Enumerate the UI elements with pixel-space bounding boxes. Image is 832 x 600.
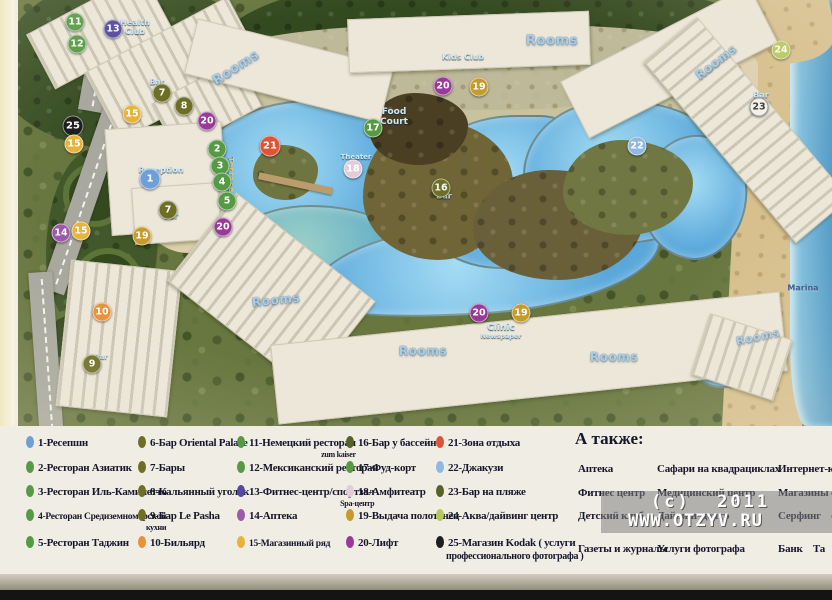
legend-label: 20-Лифт — [358, 537, 398, 549]
legend-item: 11-Немецкий ресторанzum kaiser — [237, 433, 356, 459]
map-marker-15: 15 — [123, 105, 142, 124]
map-marker-7: 7 — [159, 201, 178, 220]
map-marker-20: 20 — [214, 218, 233, 237]
legend-label: 6-Бар Oriental Palace — [150, 437, 248, 449]
legend-item: 7-Бары — [138, 458, 185, 476]
legend-item: 15-Магазинный ряд — [237, 533, 330, 551]
bottom-black-bar — [0, 590, 832, 600]
legend-dot — [237, 461, 245, 473]
map-marker-7: 7 — [153, 84, 172, 103]
legend-item: 1-Ресепшн — [26, 433, 88, 451]
legend-dot — [436, 436, 444, 448]
map-label-rooms: Rooms — [399, 344, 447, 358]
map-marker-4: 4 — [213, 173, 232, 192]
map-marker-10: 10 — [93, 303, 112, 322]
legend-dot — [346, 509, 354, 521]
legend-label: 25-Магазин Kodak ( услуги — [448, 537, 575, 549]
legend-label: 8-Кальянный уголок — [150, 486, 249, 498]
map-label-marina: Marina — [787, 284, 818, 293]
legend-dot — [237, 485, 245, 497]
legend-item: 24-Аква/дайвинг центр — [436, 506, 558, 524]
legend-dot — [436, 461, 444, 473]
legend-label: 17-Фуд-корт — [358, 462, 416, 474]
map-marker-2: 2 — [208, 140, 227, 159]
legend-dot — [26, 536, 34, 548]
legend-dot — [26, 509, 34, 521]
map-marker-5: 5 — [218, 192, 237, 211]
legend-dot — [346, 461, 354, 473]
legend-dot — [26, 436, 34, 448]
map-marker-8: 8 — [175, 97, 194, 116]
legend-dot — [26, 461, 34, 473]
map-marker-12: 12 — [68, 35, 87, 54]
also-item: Сафари на квадрациклах — [657, 463, 780, 475]
legend-sublabel: профессионального фотографа ) — [446, 551, 583, 562]
legend-dot — [237, 509, 245, 521]
legend-item: 2-Ресторан Азиатик — [26, 458, 132, 476]
watermark-year: (c) 2011 — [651, 492, 770, 512]
legend-item: 20-Лифт — [346, 533, 398, 551]
legend-label: 22-Джакузи — [448, 462, 503, 474]
legend-dot — [138, 536, 146, 548]
map-marker-18: 18 — [344, 160, 363, 179]
legend-dot — [237, 436, 245, 448]
legend-item: 25-Магазин Kodak ( услугипрофессионально… — [436, 533, 583, 562]
legend-dot — [346, 485, 354, 497]
legend-dot — [138, 436, 146, 448]
map-marker-23: 23 — [750, 98, 769, 117]
legend-item: 17-Фуд-корт — [346, 458, 416, 476]
legend-item: 22-Джакузи — [436, 458, 503, 476]
legend-label: 10-Бильярд — [150, 537, 205, 549]
legend-item: 16-Бар у бассейна — [346, 433, 441, 451]
legend-item: 23-Бар на пляже — [436, 482, 526, 500]
watermark: (c) 2011 WWW.OTZYV.RU — [601, 491, 832, 533]
map-label-kids-club: Kids Club — [442, 53, 484, 62]
legend-dot — [436, 509, 444, 521]
legend-item: 18-Амфитеатр — [346, 482, 426, 500]
legend-dot — [138, 485, 146, 497]
legend-label: 16-Бар у бассейна — [358, 437, 441, 449]
also-item: Аптека — [578, 463, 613, 475]
legend-label: 5-Ресторан Таджин — [38, 537, 129, 549]
map-marker-24: 24 — [772, 41, 791, 60]
scanned-resort-map-page: RoomsRoomsRoomsRoomsRoomsRoomsRoomsHealt… — [0, 0, 832, 600]
legend-dot — [237, 536, 245, 548]
legend-dot — [436, 536, 444, 548]
legend-label: 1-Ресепшн — [38, 437, 88, 449]
also-item: Банк Та — [778, 543, 825, 555]
map-marker-20: 20 — [470, 304, 489, 323]
map-marker-20: 20 — [198, 112, 217, 131]
map-marker-21: 21 — [260, 136, 281, 157]
map-marker-15: 15 — [65, 135, 84, 154]
map-marker-16: 16 — [432, 179, 451, 198]
also-item: Услуги фотографа — [657, 543, 745, 555]
legend-item: 6-Бар Oriental Palace — [138, 433, 248, 451]
legend-item: 21-Зона отдыха — [436, 433, 520, 451]
also-item: Интернет-кафе — [778, 463, 832, 475]
map-marker-19: 19 — [512, 304, 531, 323]
legend-label: 7-Бары — [150, 462, 185, 474]
legend-sublabel: кухни — [26, 523, 166, 532]
legend-item: 10-Бильярд — [138, 533, 205, 551]
map-marker-11: 11 — [66, 13, 85, 32]
also-item: Газеты и журналы — [578, 543, 668, 555]
map-label-rooms: Rooms — [590, 350, 638, 364]
legend-label: 9-Бар Le Pasha — [150, 510, 220, 522]
legend-label: 24-Аква/дайвинг центр — [448, 510, 558, 522]
map-label-newspaper: Newspaper — [480, 332, 521, 340]
map-marker-22: 22 — [628, 137, 647, 156]
legend-item: 5-Ресторан Таджин — [26, 533, 129, 551]
legend-dot — [436, 485, 444, 497]
map-marker-19: 19 — [133, 227, 152, 246]
map-label-food-court: Food Court — [380, 107, 408, 127]
map-label-health-club: Health Club — [120, 18, 150, 36]
map-marker-19: 19 — [470, 78, 489, 97]
legend-label: 23-Бар на пляже — [448, 486, 526, 498]
also-heading: А также: — [575, 429, 644, 449]
legend-dot — [26, 485, 34, 497]
map-marker-1: 1 — [140, 169, 161, 190]
map-marker-14: 14 — [52, 224, 71, 243]
legend-item: 9-Бар Le Pasha — [138, 506, 220, 524]
map-marker-25: 25 — [63, 116, 84, 137]
legend-dot — [138, 461, 146, 473]
map-marker-13: 13 — [104, 20, 123, 39]
legend-label: 2-Ресторан Азиатик — [38, 462, 132, 474]
bottom-gray-strip — [0, 574, 832, 590]
legend-label: 14-Аптека — [249, 510, 297, 522]
legend-dot — [346, 536, 354, 548]
watermark-site: WWW.OTZYV.RU — [628, 511, 763, 531]
map-marker-9: 9 — [83, 355, 102, 374]
map-label-rooms: Rooms — [526, 34, 578, 49]
map-marker-17: 17 — [364, 119, 383, 138]
map-marker-20: 20 — [434, 77, 453, 96]
legend-label: 15-Магазинный ряд — [249, 539, 330, 549]
legend-item: 14-Аптека — [237, 506, 297, 524]
map-marker-15: 15 — [72, 222, 91, 241]
legend-dot — [138, 509, 146, 521]
legend-item: 8-Кальянный уголок — [138, 482, 249, 500]
legend-label: 21-Зона отдыха — [448, 437, 520, 449]
resort-map: RoomsRoomsRoomsRoomsRoomsRoomsRoomsHealt… — [14, 0, 832, 426]
legend-dot — [346, 436, 354, 448]
legend-label: 11-Немецкий ресторан — [249, 437, 356, 449]
legend-label: 18-Амфитеатр — [358, 486, 426, 498]
